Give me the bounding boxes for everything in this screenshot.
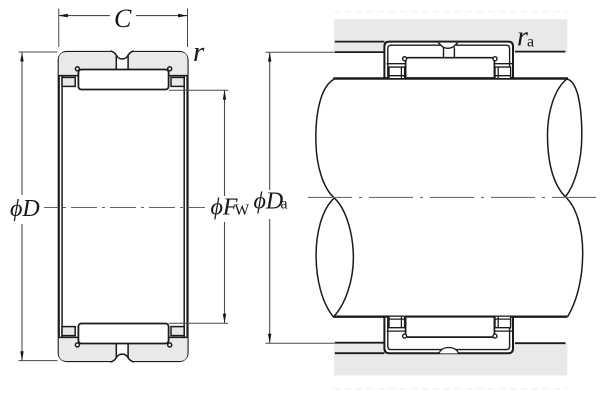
svg-text:r: r	[193, 36, 205, 68]
svg-text:a: a	[527, 33, 534, 50]
svg-text:ϕD: ϕD	[10, 196, 40, 222]
svg-text:ϕD: ϕD	[254, 189, 284, 215]
svg-text:W: W	[235, 202, 250, 219]
svg-text:a: a	[281, 196, 288, 213]
svg-text:C: C	[114, 4, 132, 33]
